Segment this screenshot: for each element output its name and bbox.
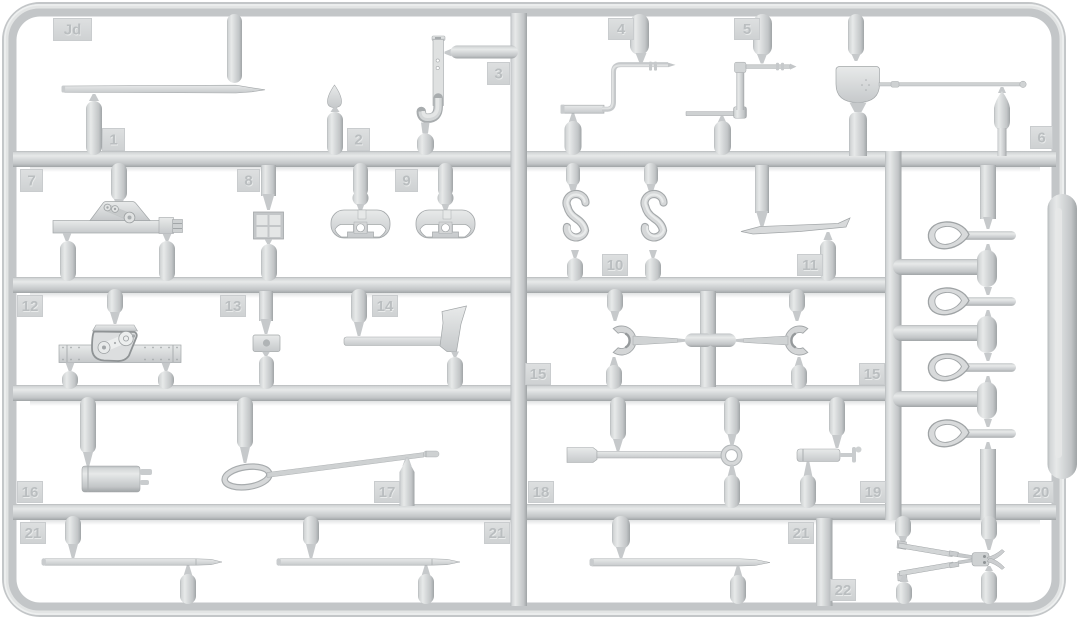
- svg-text:6: 6: [1037, 130, 1045, 147]
- svg-text:8: 8: [244, 173, 252, 190]
- svg-text:7: 7: [27, 173, 35, 190]
- svg-text:15: 15: [864, 366, 881, 383]
- svg-text:9: 9: [402, 173, 410, 190]
- svg-text:21: 21: [489, 525, 506, 542]
- svg-text:20: 20: [1033, 484, 1050, 501]
- svg-text:22: 22: [835, 582, 852, 599]
- svg-text:16: 16: [22, 484, 39, 501]
- svg-text:2: 2: [354, 132, 362, 149]
- svg-text:21: 21: [793, 525, 810, 542]
- svg-text:Jd: Jd: [64, 22, 82, 39]
- svg-text:18: 18: [533, 484, 550, 501]
- svg-text:1: 1: [109, 132, 117, 149]
- svg-text:21: 21: [25, 525, 42, 542]
- svg-text:10: 10: [607, 257, 624, 274]
- svg-text:14: 14: [377, 298, 394, 315]
- svg-text:11: 11: [802, 257, 818, 274]
- svg-text:5: 5: [743, 21, 751, 38]
- svg-text:13: 13: [225, 298, 242, 315]
- svg-text:17: 17: [379, 484, 396, 501]
- svg-text:15: 15: [530, 366, 547, 383]
- svg-text:12: 12: [22, 298, 39, 315]
- svg-text:4: 4: [617, 21, 626, 38]
- svg-text:3: 3: [494, 66, 502, 83]
- svg-text:19: 19: [865, 484, 882, 501]
